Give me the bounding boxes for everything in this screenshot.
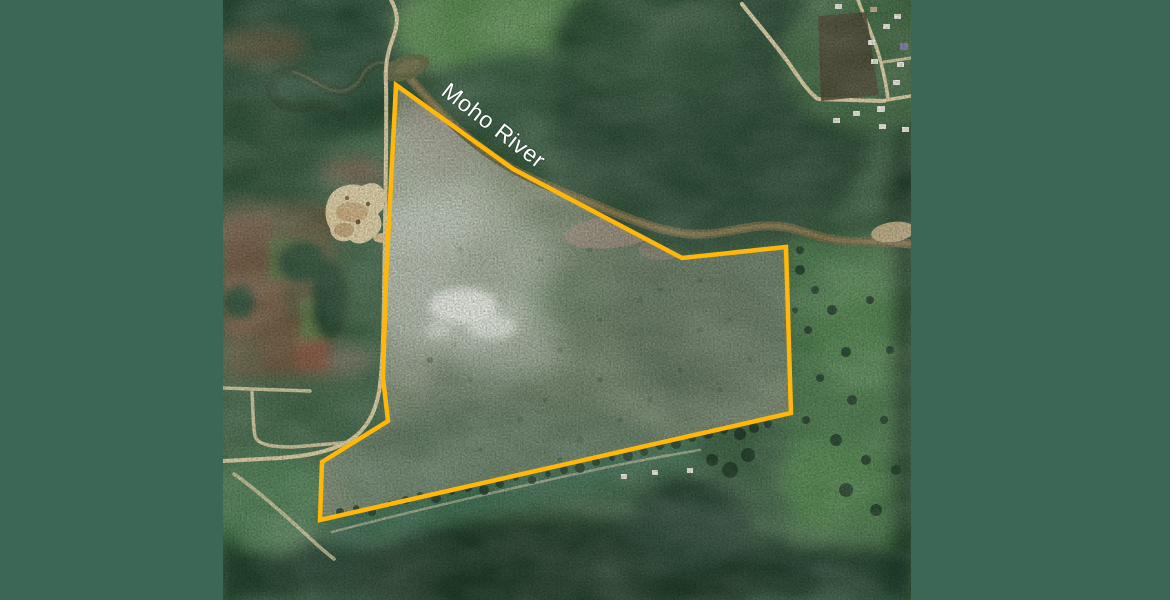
satellite-imagery	[155, 0, 953, 600]
grain-texture	[223, 0, 911, 600]
map-screenshot: Moho River	[0, 0, 1170, 600]
map-canvas: Moho River	[0, 0, 1170, 600]
